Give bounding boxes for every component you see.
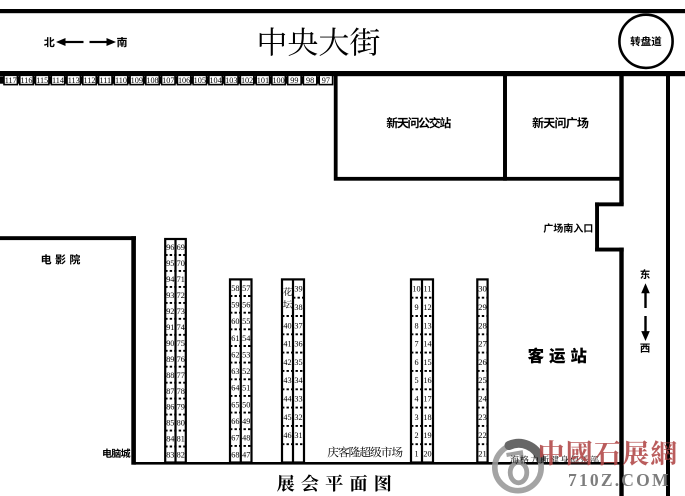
svg-text:22: 22 [478,430,487,440]
svg-text:66: 66 [231,417,239,426]
svg-text:80: 80 [177,419,185,428]
svg-text:60: 60 [231,317,239,326]
svg-text:37: 37 [294,321,302,330]
svg-text:31: 31 [294,431,302,440]
svg-text:99: 99 [290,76,298,85]
svg-text:49: 49 [242,417,250,426]
svg-text:101: 101 [257,76,269,85]
svg-text:5: 5 [414,376,418,385]
svg-text:58: 58 [231,284,239,293]
svg-text:91: 91 [166,323,174,332]
svg-text:103: 103 [225,76,237,85]
svg-text:26: 26 [478,357,487,367]
svg-text:89: 89 [166,355,174,364]
svg-text:113: 113 [68,76,80,85]
svg-text:28: 28 [478,320,487,330]
svg-text:77: 77 [177,371,185,380]
svg-text:1: 1 [414,449,418,458]
svg-text:19: 19 [423,431,431,440]
svg-text:25: 25 [478,375,487,385]
svg-text:63: 63 [231,367,239,376]
svg-text:95: 95 [166,259,174,268]
svg-text:54: 54 [242,334,250,343]
svg-text:100: 100 [272,76,284,85]
svg-text:96: 96 [166,243,174,252]
svg-text:48: 48 [242,434,250,443]
svg-text:13: 13 [423,321,431,330]
svg-text:61: 61 [231,334,239,343]
svg-text:16: 16 [423,376,431,385]
svg-text:104: 104 [209,76,221,85]
svg-text:71: 71 [177,275,185,284]
svg-text:43: 43 [283,376,291,385]
svg-text:117: 117 [5,76,17,85]
svg-text:6: 6 [414,358,418,367]
svg-text:53: 53 [242,350,250,359]
svg-text:10: 10 [412,285,420,294]
svg-text:72: 72 [177,291,185,300]
svg-text:33: 33 [294,395,302,404]
svg-text:62: 62 [231,350,239,359]
svg-text:18: 18 [423,413,431,422]
svg-text:710Z.COM: 710Z.COM [568,470,671,490]
svg-text:41: 41 [283,340,291,349]
svg-text:82: 82 [177,451,185,460]
svg-text:27: 27 [478,339,487,349]
svg-text:109: 109 [131,76,143,85]
svg-text:45: 45 [283,413,291,422]
svg-text:81: 81 [177,435,185,444]
svg-text:74: 74 [177,323,185,332]
svg-text:85: 85 [166,419,174,428]
svg-text:79: 79 [177,403,185,412]
svg-text:73: 73 [177,307,185,316]
svg-text:78: 78 [177,387,185,396]
svg-text:90: 90 [166,339,174,348]
svg-text:35: 35 [294,358,302,367]
svg-text:69: 69 [177,243,185,252]
svg-text:51: 51 [242,384,250,393]
svg-text:4: 4 [414,395,418,404]
svg-text:21: 21 [478,448,487,458]
svg-text:67: 67 [231,434,239,443]
svg-text:39: 39 [294,285,302,294]
svg-text:38: 38 [294,303,302,312]
svg-text:42: 42 [283,358,291,367]
svg-text:83: 83 [166,451,174,460]
svg-text:102: 102 [241,76,253,85]
svg-text:97: 97 [322,76,330,85]
svg-text:84: 84 [166,435,174,444]
svg-text:23: 23 [478,412,487,422]
svg-text:46: 46 [283,431,291,440]
svg-text:88: 88 [166,371,174,380]
svg-text:50: 50 [242,400,250,409]
svg-text:106: 106 [178,76,190,85]
svg-text:40: 40 [283,321,291,330]
svg-text:93: 93 [166,291,174,300]
svg-text:44: 44 [283,395,291,404]
svg-text:114: 114 [52,76,64,85]
svg-text:55: 55 [242,317,250,326]
svg-text:15: 15 [423,358,431,367]
svg-text:107: 107 [162,76,174,85]
svg-text:75: 75 [177,339,185,348]
svg-text:87: 87 [166,387,174,396]
svg-text:98: 98 [306,76,314,85]
svg-text:110: 110 [115,76,127,85]
svg-text:14: 14 [423,340,431,349]
svg-text:111: 111 [99,76,111,85]
svg-text:65: 65 [231,400,239,409]
svg-text:20: 20 [423,449,431,458]
svg-text:24: 24 [478,394,487,404]
svg-text:2: 2 [414,431,418,440]
svg-text:9: 9 [414,303,418,312]
svg-text:59: 59 [231,301,239,310]
svg-text:116: 116 [21,76,33,85]
svg-text:68: 68 [231,450,239,459]
svg-text:34: 34 [294,376,302,385]
svg-text:30: 30 [478,284,487,294]
svg-text:36: 36 [294,340,302,349]
svg-text:86: 86 [166,403,174,412]
svg-text:76: 76 [177,355,185,364]
svg-text:32: 32 [294,413,302,422]
svg-text:3: 3 [414,413,418,422]
svg-text:17: 17 [423,395,431,404]
svg-text:29: 29 [478,302,487,312]
svg-text:94: 94 [166,275,174,284]
svg-text:108: 108 [146,76,158,85]
svg-text:7: 7 [414,340,418,349]
svg-text:52: 52 [242,367,250,376]
svg-text:12: 12 [423,303,431,312]
svg-text:47: 47 [242,450,250,459]
svg-text:57: 57 [242,284,250,293]
svg-text:8: 8 [414,321,418,330]
svg-text:112: 112 [84,76,96,85]
svg-text:11: 11 [424,285,432,294]
svg-text:105: 105 [194,76,206,85]
svg-text:64: 64 [231,384,239,393]
svg-text:70: 70 [177,259,185,268]
svg-text:56: 56 [242,301,250,310]
svg-text:115: 115 [36,76,48,85]
svg-text:92: 92 [166,307,174,316]
